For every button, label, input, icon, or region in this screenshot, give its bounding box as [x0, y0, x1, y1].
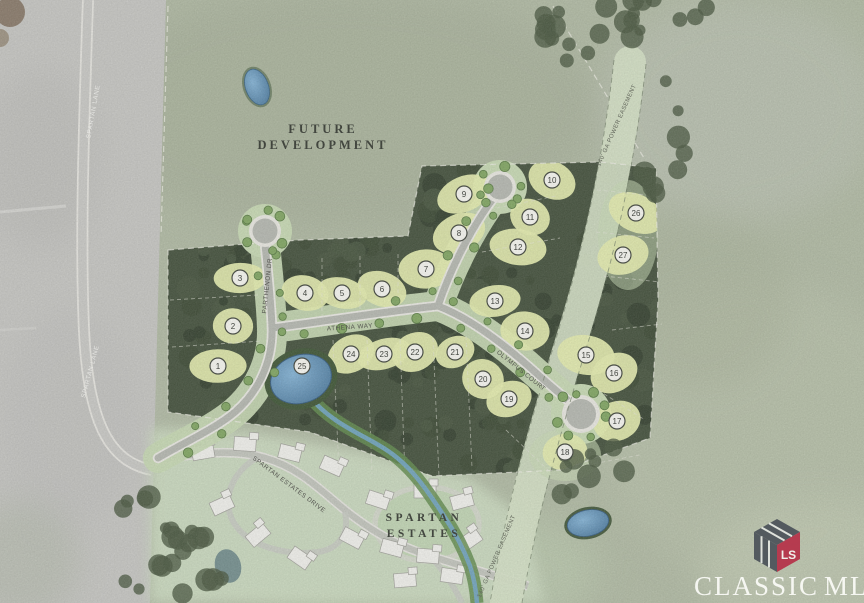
- brand-wordmark: CLASSICMLS: [694, 571, 864, 601]
- mls-cube-monogram: LS: [781, 548, 796, 562]
- site-plan-canvas: 1234567891011121314151617181920212223242…: [0, 0, 864, 603]
- grain-overlay-dark: [0, 0, 864, 603]
- site-plan-map: 1234567891011121314151617181920212223242…: [0, 0, 864, 603]
